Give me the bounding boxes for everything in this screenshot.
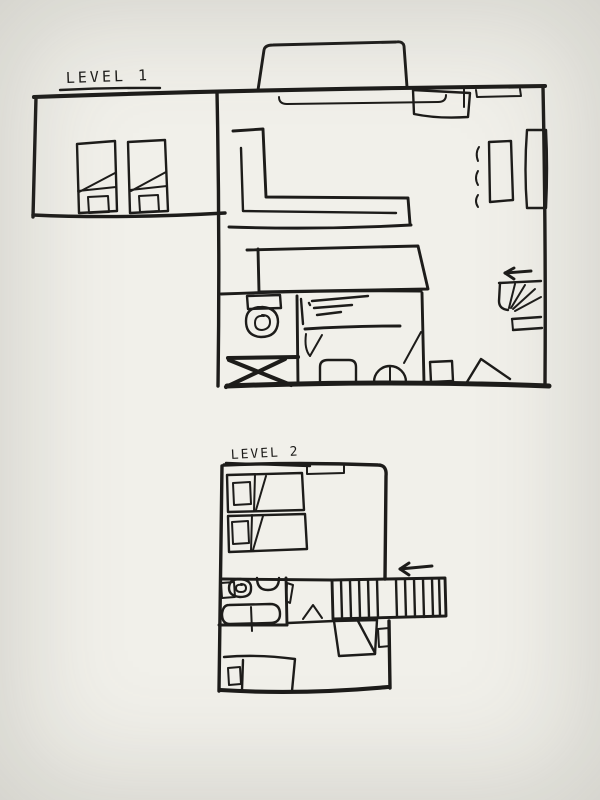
closet-box-top-right [413,90,470,118]
straight-stairs [332,578,446,619]
corner-sofa [229,129,411,228]
bathtub [222,604,280,631]
washing-machine [246,295,281,337]
door-leaf-right [430,361,453,382]
twin-bed-2 [128,140,168,213]
level-2-label: LEVEL 2 [230,444,299,463]
window-sill-middle [279,95,446,104]
floor-plan-drawing: LEVEL 1 [0,0,600,800]
chair-dashes [476,147,479,207]
level-2-plan: LEVEL 2 [219,444,446,692]
door-swing-wedge-corridor [303,605,322,619]
arrow-left-icon-level-2 [400,563,432,575]
window-sill-right [464,89,521,107]
stair-landing [334,620,377,656]
door-swing-wedge-left [306,334,323,356]
arrow-left-icon-level-1 [505,268,531,279]
entry-porch [258,42,407,90]
level-1-outer-walls [33,86,549,386]
window-notch-level-2 [307,466,344,474]
bed-lower [224,656,295,691]
bathroom-door-leaf [286,583,293,603]
kitchen-counter-hatch [301,296,400,329]
level-1-label: LEVEL 1 [66,66,151,87]
desk-right [489,141,513,202]
table [247,246,428,292]
level-1-label-underline [60,88,160,90]
level-1-plan: LEVEL 1 [33,42,549,387]
door-leaf-bottom [320,360,356,382]
door-arc-bottom [374,366,406,382]
floor-plan-sketch-page: LEVEL 1 [0,0,600,800]
twin-bed-1 [77,141,117,213]
winder-stairs [499,281,542,330]
door-swing-wedge-right [467,359,510,382]
bed-upper-2 [228,514,307,552]
door-swing-inner-wall [404,332,421,363]
bed-upper-1 [227,473,304,512]
toilet [229,579,251,597]
